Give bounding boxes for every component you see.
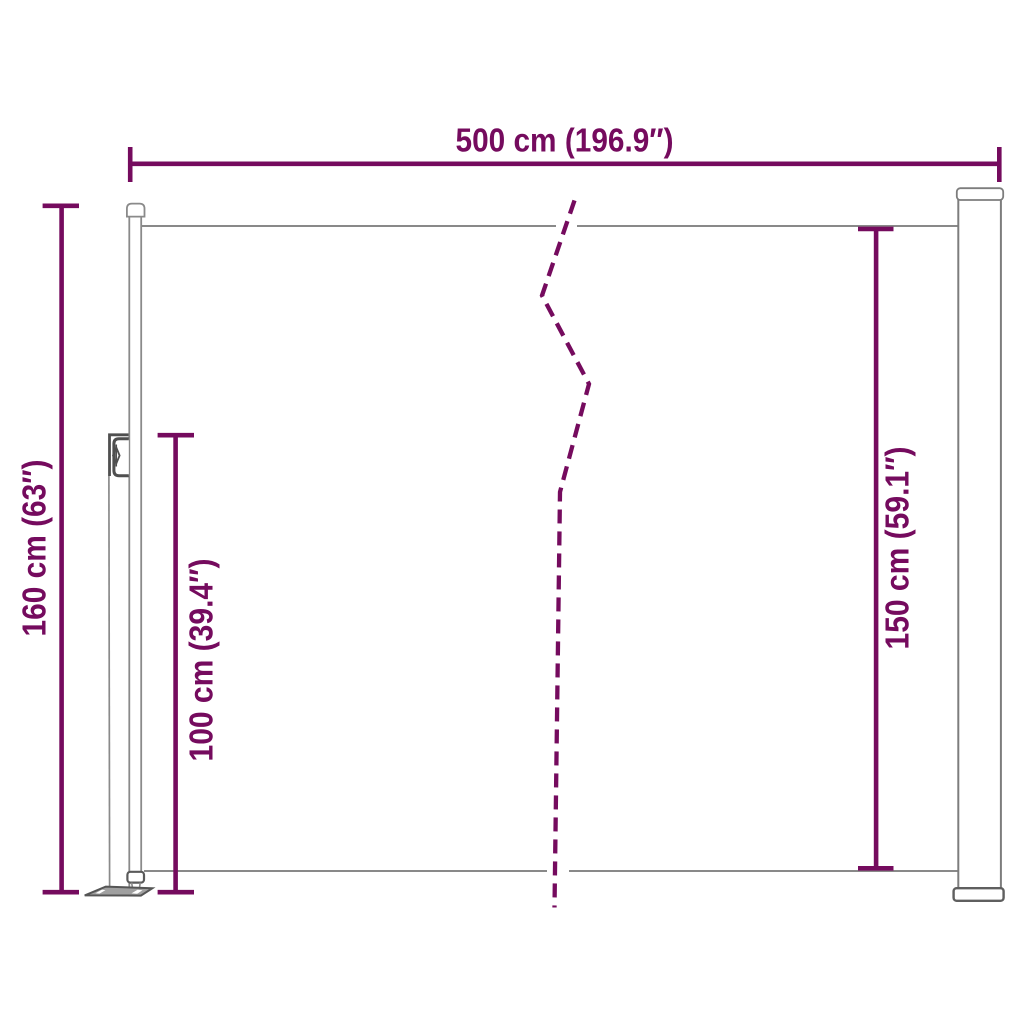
svg-text:150 cm (59.1″): 150 cm (59.1″) <box>880 447 917 650</box>
svg-text:500 cm (196.9″): 500 cm (196.9″) <box>456 123 674 160</box>
svg-text:160 cm (63″): 160 cm (63″) <box>17 460 54 637</box>
svg-text:100 cm (39.4″): 100 cm (39.4″) <box>184 559 221 762</box>
